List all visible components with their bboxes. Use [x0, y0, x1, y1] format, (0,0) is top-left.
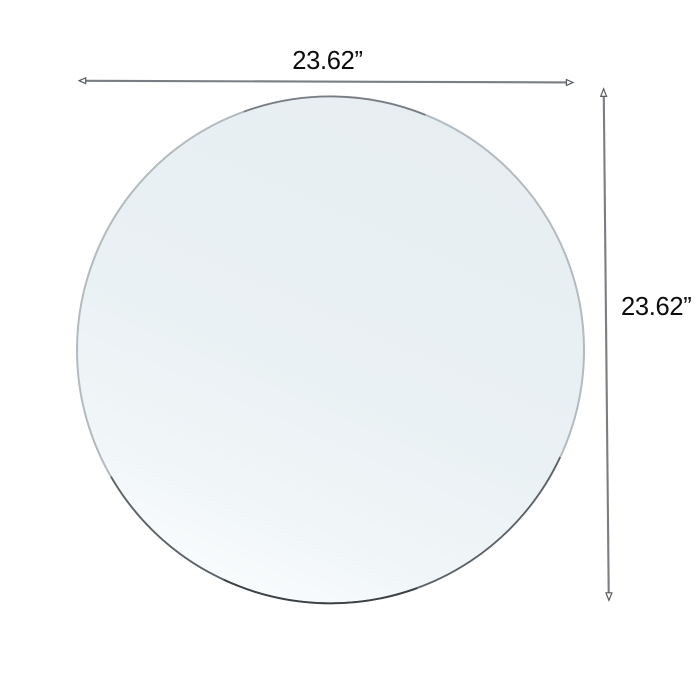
svg-text:23.62”: 23.62” [621, 293, 692, 321]
svg-text:23.62”: 23.62” [292, 47, 363, 75]
